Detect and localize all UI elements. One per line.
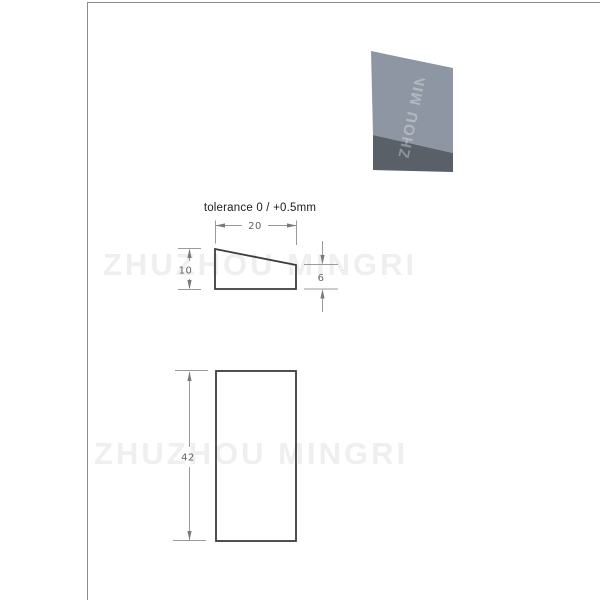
dim-label-height: 42 (181, 453, 195, 464)
arrowhead-down-icon (320, 255, 324, 265)
dim-label-left-height: 10 (179, 266, 193, 277)
product-photo: ZHUZHOU MINGRI (371, 42, 453, 195)
arrowhead-up-icon (187, 372, 191, 382)
arrowhead-down-icon (187, 531, 191, 541)
arrowhead-left-icon (216, 223, 226, 227)
rectangle-outline (216, 371, 296, 541)
wedge-outline (215, 249, 296, 289)
dim-label-right-height: 6 (318, 273, 325, 284)
product-drawing-sheet: ZHUZHOU MINGRI ZHUZHOU MINGRI tolerance … (0, 0, 600, 600)
dimension-height: 42 (173, 371, 208, 541)
technical-drawing: 20 10 6 (0, 0, 600, 600)
dimension-width: 20 (216, 221, 297, 246)
top-view-wedge: 20 10 6 (178, 221, 338, 313)
arrowhead-right-icon (287, 223, 297, 227)
arrowhead-up-icon (320, 289, 324, 299)
front-view-rectangle: 42 (173, 371, 296, 542)
dim-label-width: 20 (248, 221, 262, 232)
dimension-right-height: 6 (304, 241, 338, 312)
arrowhead-up-icon (187, 249, 191, 259)
tolerance-note: tolerance 0 / +0.5mm (165, 202, 355, 214)
dimension-left-height: 10 (178, 249, 201, 290)
arrowhead-down-icon (187, 280, 191, 290)
